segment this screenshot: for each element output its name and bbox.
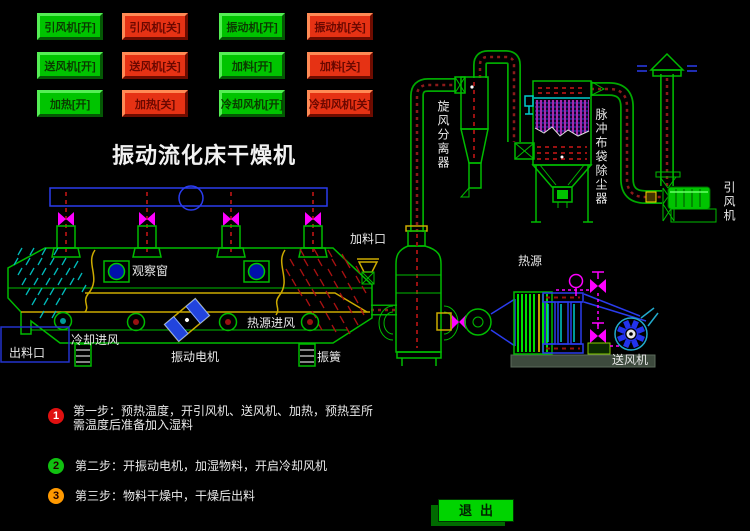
btn-cooling-fan-off[interactable]: 冷却风机[关]	[307, 90, 373, 117]
exit-button[interactable]: 退出	[438, 499, 514, 522]
label-induced-draft-fan: 引风机	[722, 181, 736, 223]
label-heat-source: 热源	[518, 252, 542, 269]
step1-badge: 1	[48, 408, 64, 424]
btn-vibrator-off[interactable]: 振动机[关]	[307, 13, 373, 40]
stack-cap-icon	[637, 54, 697, 76]
btn-heat-off[interactable]: 加热[关]	[122, 90, 188, 117]
btn-induced-fan-off[interactable]: 引风机[关]	[122, 13, 188, 40]
step3-text: 第三步：物料干燥中，干燥后出料	[75, 489, 405, 503]
label-pulse-bag-filter: 脉冲布袋除尘器	[594, 108, 608, 206]
vent-valve-icons	[58, 212, 321, 226]
btn-induced-fan-on[interactable]: 引风机[开]	[37, 13, 103, 40]
induced-fan-icon	[646, 172, 716, 222]
label-discharge-outlet: 出料口	[9, 344, 45, 361]
btn-supply-fan-on[interactable]: 送风机[开]	[37, 52, 103, 79]
page-title: 振动流化床干燥机	[112, 138, 296, 170]
steam-valves-icon	[556, 272, 620, 354]
label-vibration-spring: 振簧	[317, 348, 341, 365]
step3-badge: 3	[48, 488, 64, 504]
hmi-screen: 引风机[开] 引风机[关] 振动机[开] 振动机[关] 送风机[开] 送风机[关…	[0, 0, 750, 531]
process-diagram	[0, 0, 750, 531]
label-heat-air-inlet: 热源进风	[247, 314, 295, 331]
bag-filter-icon	[515, 81, 604, 222]
label-cooling-air-inlet: 冷却进风	[71, 331, 119, 348]
btn-feed-off[interactable]: 加料[关]	[307, 52, 373, 79]
step2-text: 第二步：开振动电机，加湿物料，开启冷却风机	[75, 459, 405, 473]
dryer-vent-header-icon	[50, 186, 327, 257]
scrubber-column-icon	[379, 226, 515, 366]
label-vibration-motor: 振动电机	[171, 348, 219, 365]
btn-supply-fan-off[interactable]: 送风机[关]	[122, 52, 188, 79]
step1-text: 第一步：预热温度，开引风机、送风机、加热，预热至所需温度后准备加入湿料	[73, 404, 375, 432]
label-supply-fan: 送风机	[612, 351, 648, 368]
btn-cooling-fan-on[interactable]: 冷却风机[开]	[219, 90, 285, 117]
step2-badge: 2	[48, 458, 64, 474]
vibration-motor-icon	[165, 299, 210, 342]
btn-feed-on[interactable]: 加料[开]	[219, 52, 285, 79]
observation-window-icon	[104, 261, 269, 282]
label-feed-inlet: 加料口	[350, 230, 386, 247]
cyclone-icon	[455, 77, 488, 197]
label-cyclone-separator: 旋风分离器	[436, 100, 450, 170]
label-observation-window: 观察窗	[132, 262, 168, 279]
btn-heat-on[interactable]: 加热[开]	[37, 90, 103, 117]
btn-vibrator-on[interactable]: 振动机[开]	[219, 13, 285, 40]
